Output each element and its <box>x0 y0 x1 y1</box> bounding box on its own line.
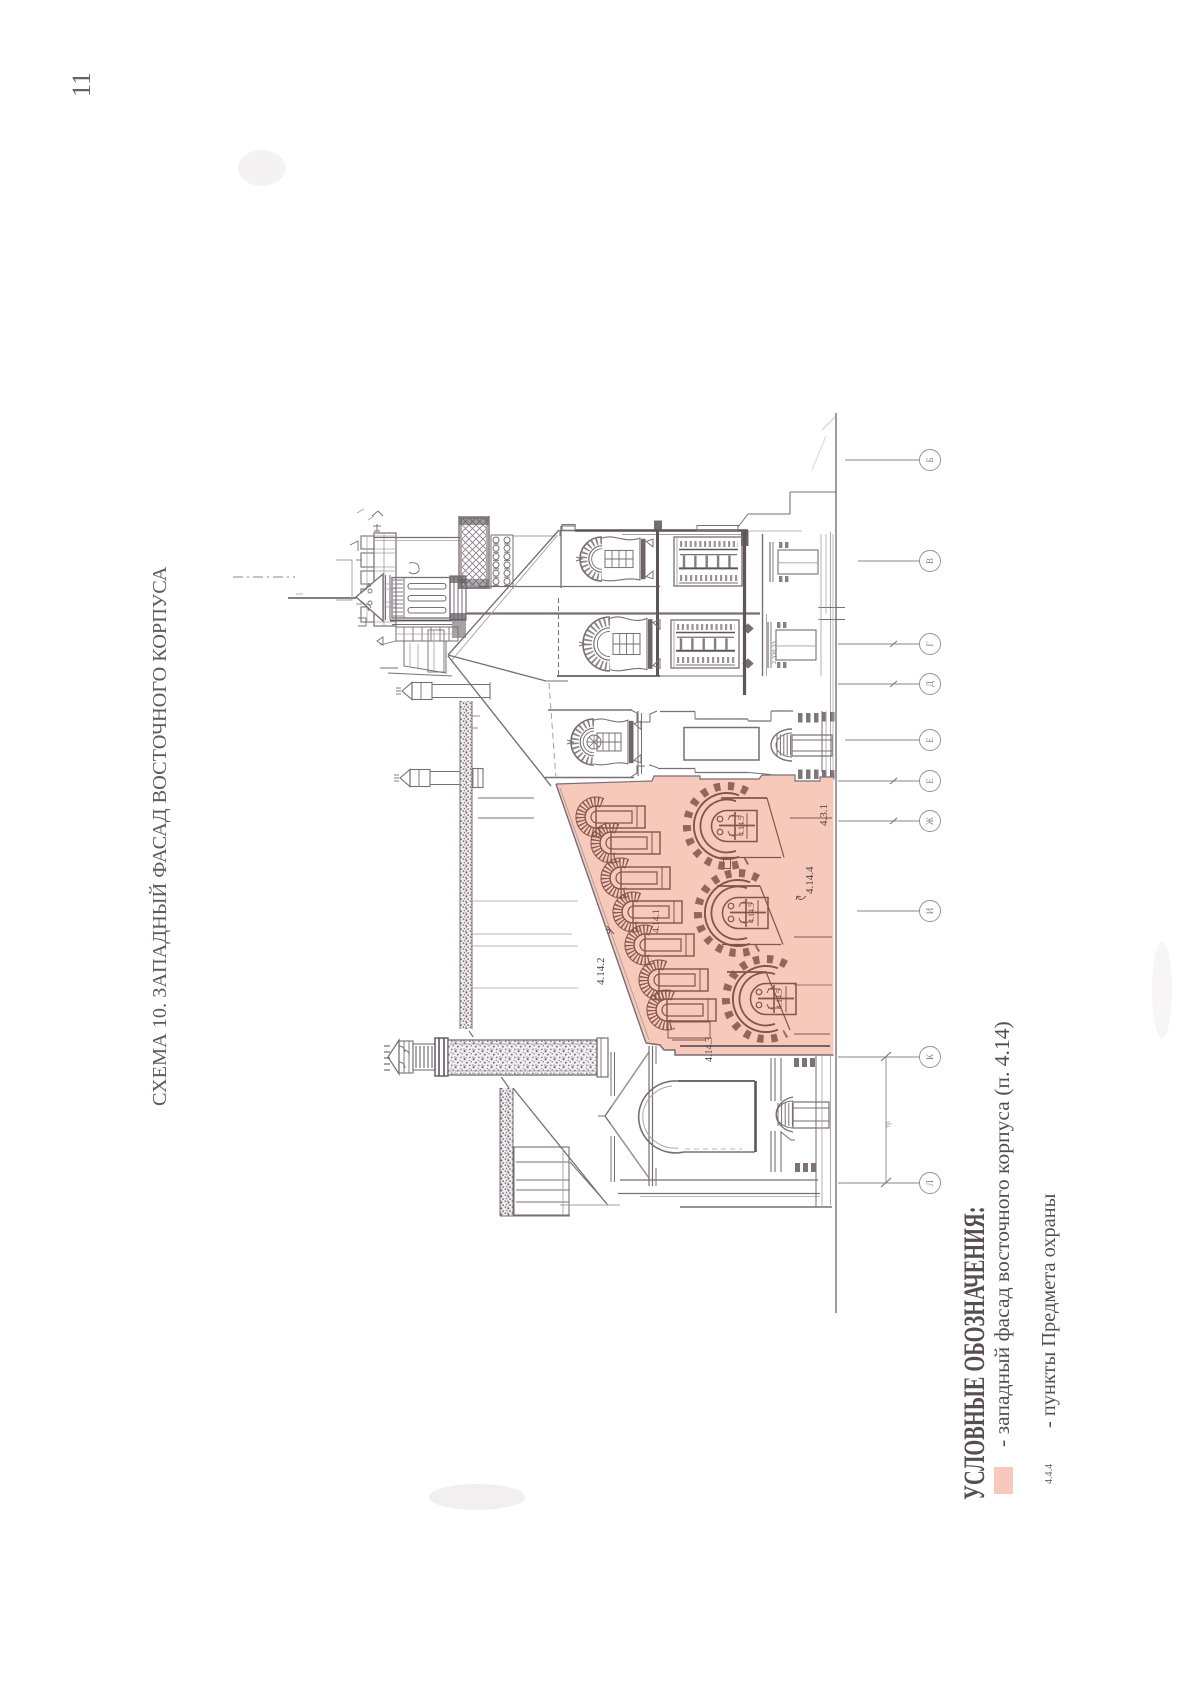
svg-text:- пункты Предмета охраны: - пункты Предмета охраны <box>1038 1193 1060 1428</box>
svg-text:Г: Г <box>925 641 935 646</box>
svg-text:СХЕМА 10. ЗАПАДНЫЙ ФАСАД ВОСТО: СХЕМА 10. ЗАПАДНЫЙ ФАСАД ВОСТОЧНОГО КОРП… <box>148 566 171 1106</box>
svg-text:4.14.1: 4.14.1 <box>652 909 662 933</box>
svg-text:Д: Д <box>925 681 935 687</box>
svg-text:4.14.4: 4.14.4 <box>804 866 816 894</box>
svg-text:Е: Е <box>925 778 935 784</box>
svg-text:К: К <box>925 1053 935 1060</box>
svg-text:Ж: Ж <box>925 816 935 825</box>
svg-text:4.3.1: 4.3.1 <box>818 804 830 826</box>
svg-text:11: 11 <box>67 72 96 97</box>
svg-text:- западный фасад восточного ко: - западный фасад восточного корпуса (п. … <box>990 1021 1014 1447</box>
svg-text:4.4.4: 4.4.4 <box>1044 1464 1055 1484</box>
svg-text:4.14.3: 4.14.3 <box>704 1037 715 1062</box>
svg-text:Л: Л <box>925 1180 935 1186</box>
svg-text:Б: Б <box>925 457 935 462</box>
svg-text:УСЛОВНЫЕ ОБОЗНАЧЕНИЯ:: УСЛОВНЫЕ ОБОЗНАЧЕНИЯ: <box>957 1206 991 1500</box>
svg-text:И: И <box>925 907 935 914</box>
svg-text:Е: Е <box>925 737 935 743</box>
svg-text:4.14.2: 4.14.2 <box>595 958 607 986</box>
svg-text:В: В <box>925 558 935 564</box>
svg-text:тр: тр <box>884 1121 892 1128</box>
svg-text:4.14.5: 4.14.5 <box>775 989 784 1009</box>
svg-text:4.14.5: 4.14.5 <box>737 816 746 836</box>
svg-text:4.14.5: 4.14.5 <box>747 903 756 923</box>
svg-text:2.330,33: 2.330,33 <box>771 641 778 664</box>
